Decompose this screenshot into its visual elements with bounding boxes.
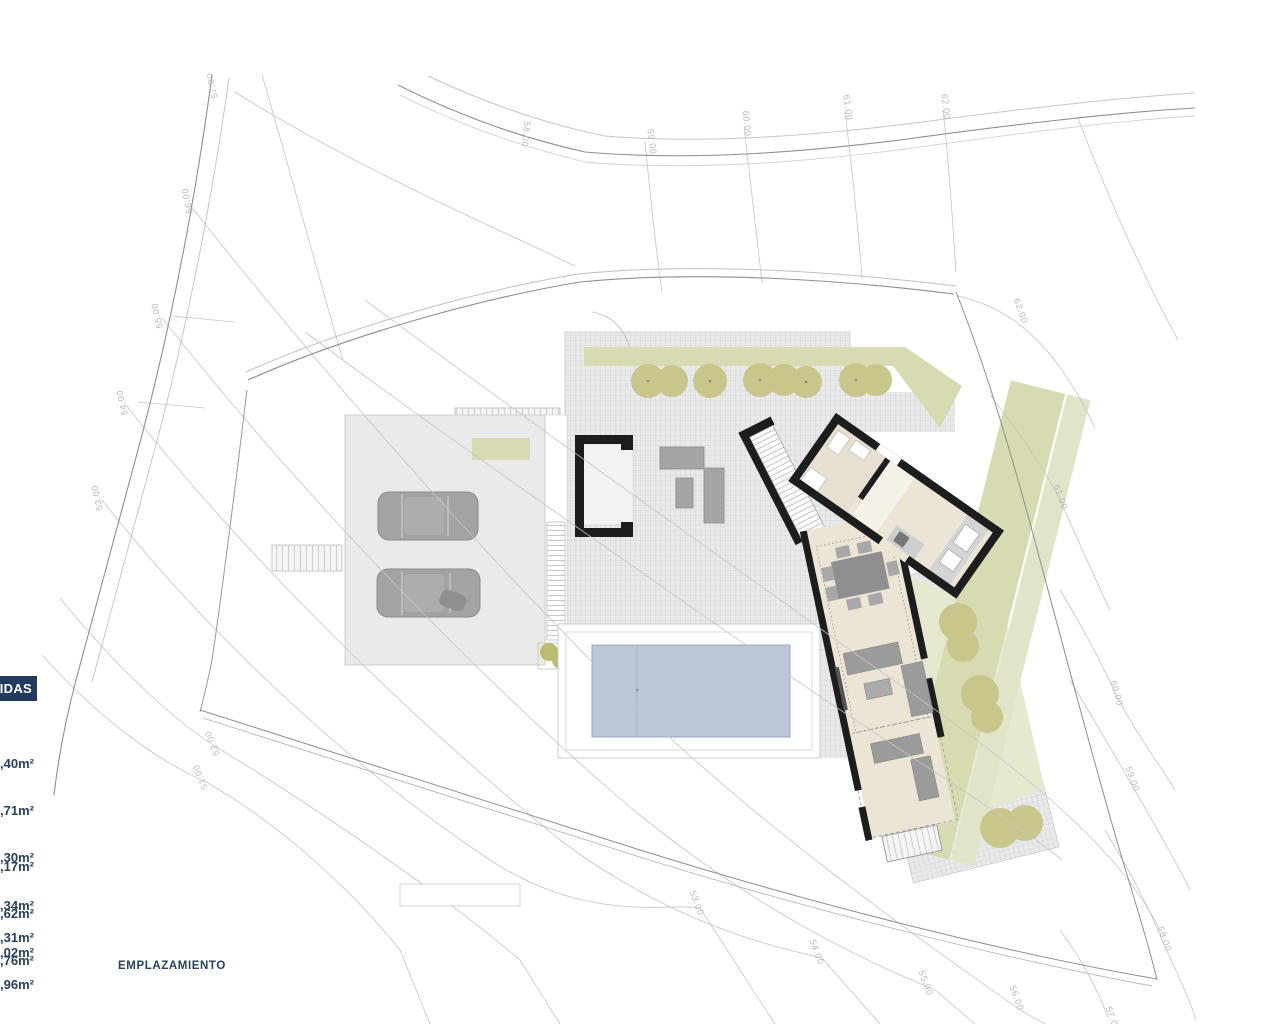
contour-label: 62.00 (939, 93, 952, 120)
contour-label: 60.00 (740, 110, 753, 137)
contour-label: 51.00 (191, 763, 210, 791)
contour-label: 59.00 (645, 128, 658, 155)
area-value: ,40m² (0, 756, 34, 772)
site-plan-canvas: 57.0056.0055.0054.0053.0052.0051.0058.00… (0, 0, 1280, 1024)
steps-west (272, 545, 342, 571)
contour-label: 55.00 (149, 302, 165, 330)
contour-label: 57.00 (1104, 1005, 1122, 1024)
contour-label: 57.00 (204, 72, 220, 100)
contour-label: 58.00 (1156, 925, 1174, 953)
contour-label: 53.00 (688, 889, 706, 917)
contour-label: 60.00 (1109, 679, 1125, 707)
pool (592, 645, 790, 737)
legend-header-label: IDAS (0, 681, 32, 696)
pool-area (558, 624, 820, 758)
car (378, 492, 478, 540)
site-plan-svg: 57.0056.0055.0054.0053.0052.0051.0058.00… (0, 0, 1280, 1024)
contour-label: 56.00 (1008, 984, 1026, 1012)
area-value: ,31m² (0, 930, 34, 946)
area-value: ,96m² (0, 977, 34, 993)
legend-header: IDAS (0, 676, 37, 701)
area-value: ,17m² (0, 859, 34, 875)
contour-label: 54.00 (808, 938, 826, 966)
legend-group-plot: ,31m² ,96m² ,90m² ,98m² ,72m² (0, 898, 34, 1024)
planter (472, 438, 530, 460)
contour-label: 61.00 (841, 94, 854, 121)
page-title: EMPLAZAMIENTO (118, 960, 226, 972)
steps-corridor (547, 522, 565, 640)
trees-top (631, 363, 892, 398)
contour-label: 53.00 (89, 484, 105, 512)
contour-label: 52.00 (203, 729, 222, 757)
area-value: ,71m² (0, 803, 34, 819)
contour-label: 58.00 (520, 121, 533, 148)
label-box (400, 884, 520, 906)
car (377, 569, 480, 617)
contour-label: 54.00 (114, 389, 130, 417)
contour-label: 59.00 (1124, 765, 1142, 793)
